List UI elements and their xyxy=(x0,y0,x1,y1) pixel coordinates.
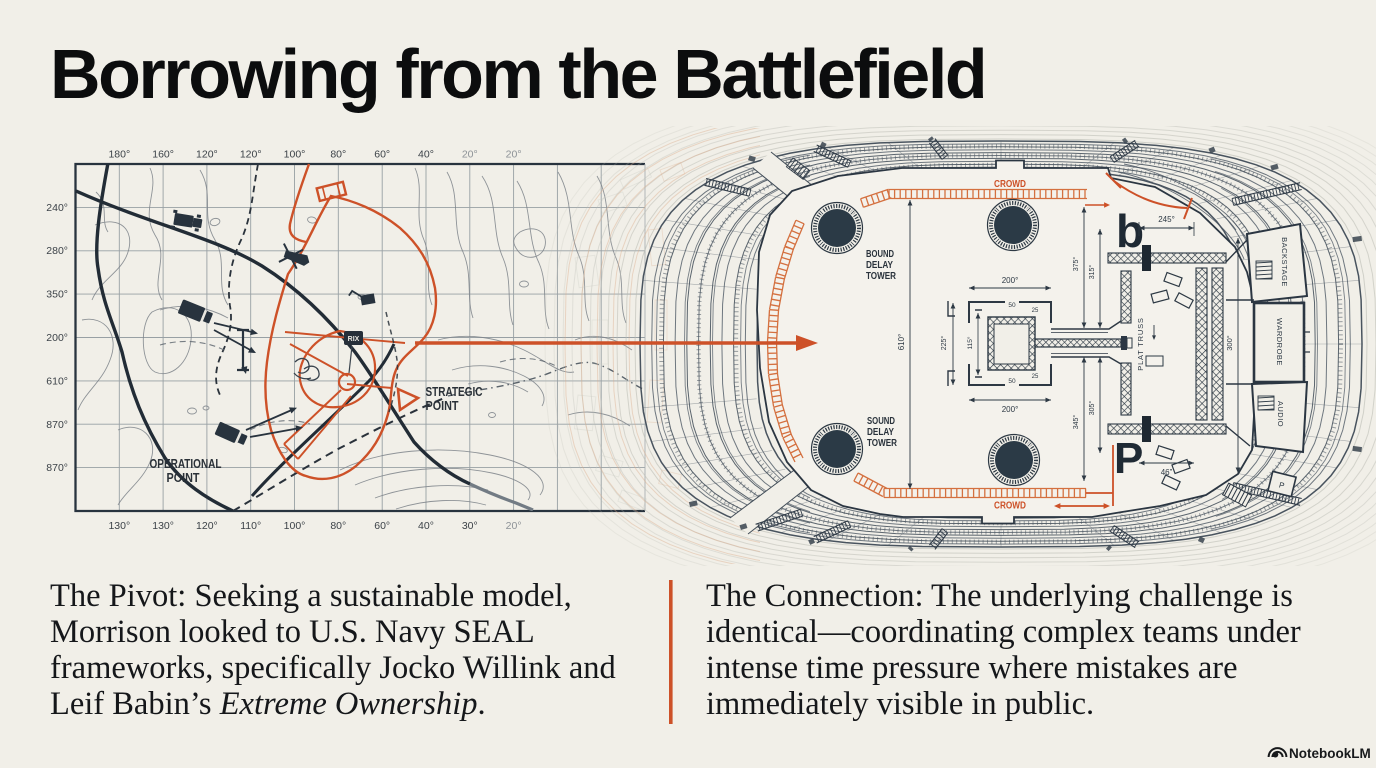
svg-text:Morrison looked to U.S. Navy S: Morrison looked to U.S. Navy SEAL xyxy=(50,614,535,650)
svg-text:TOWER: TOWER xyxy=(867,437,897,449)
svg-text:46”: 46” xyxy=(1161,468,1173,477)
svg-text:immediately visible in public.: immediately visible in public. xyxy=(706,686,1094,722)
svg-text:200°: 200° xyxy=(1002,405,1019,414)
svg-text:40°: 40° xyxy=(418,149,434,161)
svg-text:180°: 180° xyxy=(108,149,130,161)
svg-text:345°: 345° xyxy=(1072,415,1080,430)
svg-text:OPERATIONAL: OPERATIONAL xyxy=(150,457,222,471)
svg-text:TOWER: TOWER xyxy=(866,270,896,282)
svg-text:870°: 870° xyxy=(46,462,68,474)
svg-text:WARDROBE: WARDROBE xyxy=(1275,318,1284,366)
svg-text:120°: 120° xyxy=(196,520,218,532)
svg-text:25: 25 xyxy=(1032,308,1039,314)
svg-text:60°: 60° xyxy=(374,520,390,532)
svg-text:The Connection: The underlying: The Connection: The underlying challenge… xyxy=(706,578,1293,614)
svg-text:CROWD: CROWD xyxy=(994,179,1026,190)
svg-text:30°: 30° xyxy=(462,520,478,532)
svg-text:120°: 120° xyxy=(240,149,262,161)
svg-text:The Pivot: Seeking a sustainab: The Pivot: Seeking a sustainable model, xyxy=(50,578,572,614)
svg-text:frameworks, specifically Jocko: frameworks, specifically Jocko Willink a… xyxy=(50,650,616,686)
svg-text:200°: 200° xyxy=(1002,276,1019,285)
svg-text:305°: 305° xyxy=(1088,401,1096,416)
svg-text:RIX: RIX xyxy=(348,336,360,343)
svg-text:Borrowing from the Battlefield: Borrowing from the Battlefield xyxy=(50,35,985,113)
svg-text:610°: 610° xyxy=(46,375,68,387)
svg-text:870°: 870° xyxy=(46,419,68,431)
svg-text:280°: 280° xyxy=(46,245,68,257)
svg-text:CROWD: CROWD xyxy=(994,501,1026,512)
svg-text:160°: 160° xyxy=(152,149,174,161)
svg-text:375°: 375° xyxy=(1072,257,1080,272)
svg-text:40°: 40° xyxy=(418,520,434,532)
svg-text:100°: 100° xyxy=(284,149,306,161)
svg-text:110°: 110° xyxy=(240,520,261,532)
svg-text:610°: 610° xyxy=(897,334,906,351)
svg-text:200°: 200° xyxy=(46,332,68,344)
svg-text:P: P xyxy=(1114,434,1143,483)
svg-text:80°: 80° xyxy=(330,149,346,161)
svg-text:225°: 225° xyxy=(940,336,948,351)
svg-text:300°: 300° xyxy=(1225,335,1234,351)
svg-text:AUDIO: AUDIO xyxy=(1276,401,1285,427)
svg-text:STRATEGIC: STRATEGIC xyxy=(426,385,483,399)
svg-text:50: 50 xyxy=(1008,302,1016,309)
svg-text:120°: 120° xyxy=(196,149,218,161)
svg-text:25: 25 xyxy=(1032,374,1039,380)
svg-text:130°: 130° xyxy=(152,520,174,532)
svg-text:350°: 350° xyxy=(46,289,68,301)
svg-text:80°: 80° xyxy=(330,520,346,532)
svg-text:Leif Babin’s Extreme Ownership: Leif Babin’s Extreme Ownership. xyxy=(50,686,486,722)
svg-text:POINT: POINT xyxy=(167,471,200,485)
svg-text:20°: 20° xyxy=(462,149,478,161)
svg-text:POINT: POINT xyxy=(426,399,459,413)
svg-text:identical—coordinating complex: identical—coordinating complex teams und… xyxy=(706,614,1301,650)
svg-text:130°: 130° xyxy=(108,520,130,532)
svg-text:60°: 60° xyxy=(374,149,390,161)
svg-text:100°: 100° xyxy=(284,520,306,532)
svg-text:115°: 115° xyxy=(966,336,974,349)
svg-text:50: 50 xyxy=(1008,378,1016,385)
svg-text:245°: 245° xyxy=(1158,215,1175,224)
svg-text:20°: 20° xyxy=(506,149,522,161)
svg-text:intense time pressure where mi: intense time pressure where mistakes are xyxy=(706,650,1238,686)
svg-text:315°: 315° xyxy=(1088,265,1096,280)
svg-text:b: b xyxy=(1116,205,1144,257)
svg-text:240°: 240° xyxy=(46,202,68,214)
svg-text:20°: 20° xyxy=(506,520,522,532)
svg-text:PLAT TRUSS: PLAT TRUSS xyxy=(1136,317,1145,370)
svg-text:NotebookLM: NotebookLM xyxy=(1289,746,1371,761)
svg-text:BACKSTAGE: BACKSTAGE xyxy=(1280,237,1289,287)
